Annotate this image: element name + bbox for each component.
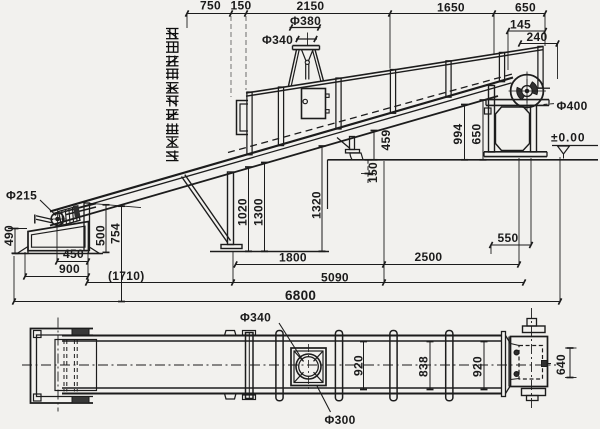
- svg-text:150: 150: [366, 162, 380, 183]
- svg-text:838: 838: [417, 356, 431, 377]
- svg-text:640: 640: [554, 354, 568, 375]
- svg-text:900: 900: [59, 262, 80, 276]
- svg-text:500: 500: [94, 225, 108, 246]
- svg-text:750: 750: [200, 0, 221, 13]
- svg-text:Φ380: Φ380: [290, 14, 321, 28]
- svg-text:Φ340: Φ340: [240, 311, 271, 325]
- svg-text:2500: 2500: [415, 250, 443, 264]
- svg-text:650: 650: [470, 124, 484, 145]
- svg-text:(1710): (1710): [108, 269, 145, 283]
- svg-text:Φ300: Φ300: [325, 413, 356, 427]
- svg-text:240: 240: [527, 30, 548, 44]
- svg-text:920: 920: [352, 355, 366, 376]
- svg-text:1650: 1650: [437, 1, 465, 15]
- svg-text:450: 450: [63, 247, 84, 261]
- svg-text:754: 754: [109, 223, 123, 244]
- svg-text:Φ340: Φ340: [262, 33, 293, 47]
- svg-text:±0.00: ±0.00: [551, 131, 585, 145]
- svg-text:1020: 1020: [236, 198, 250, 226]
- svg-text:1320: 1320: [310, 191, 324, 219]
- svg-text:459: 459: [379, 130, 393, 151]
- svg-text:1300: 1300: [252, 198, 266, 226]
- svg-text:550: 550: [498, 231, 519, 245]
- svg-text:920: 920: [471, 356, 485, 377]
- svg-text:6800: 6800: [285, 288, 316, 303]
- svg-text:Φ400: Φ400: [557, 99, 588, 113]
- svg-text:150: 150: [231, 0, 252, 13]
- svg-text:Φ215: Φ215: [6, 189, 37, 203]
- svg-text:5090: 5090: [321, 271, 349, 285]
- svg-text:1800: 1800: [279, 251, 307, 265]
- svg-text:2150: 2150: [297, 0, 325, 13]
- svg-text:490: 490: [2, 225, 16, 246]
- svg-text:650: 650: [515, 1, 536, 15]
- svg-text:994: 994: [451, 124, 465, 145]
